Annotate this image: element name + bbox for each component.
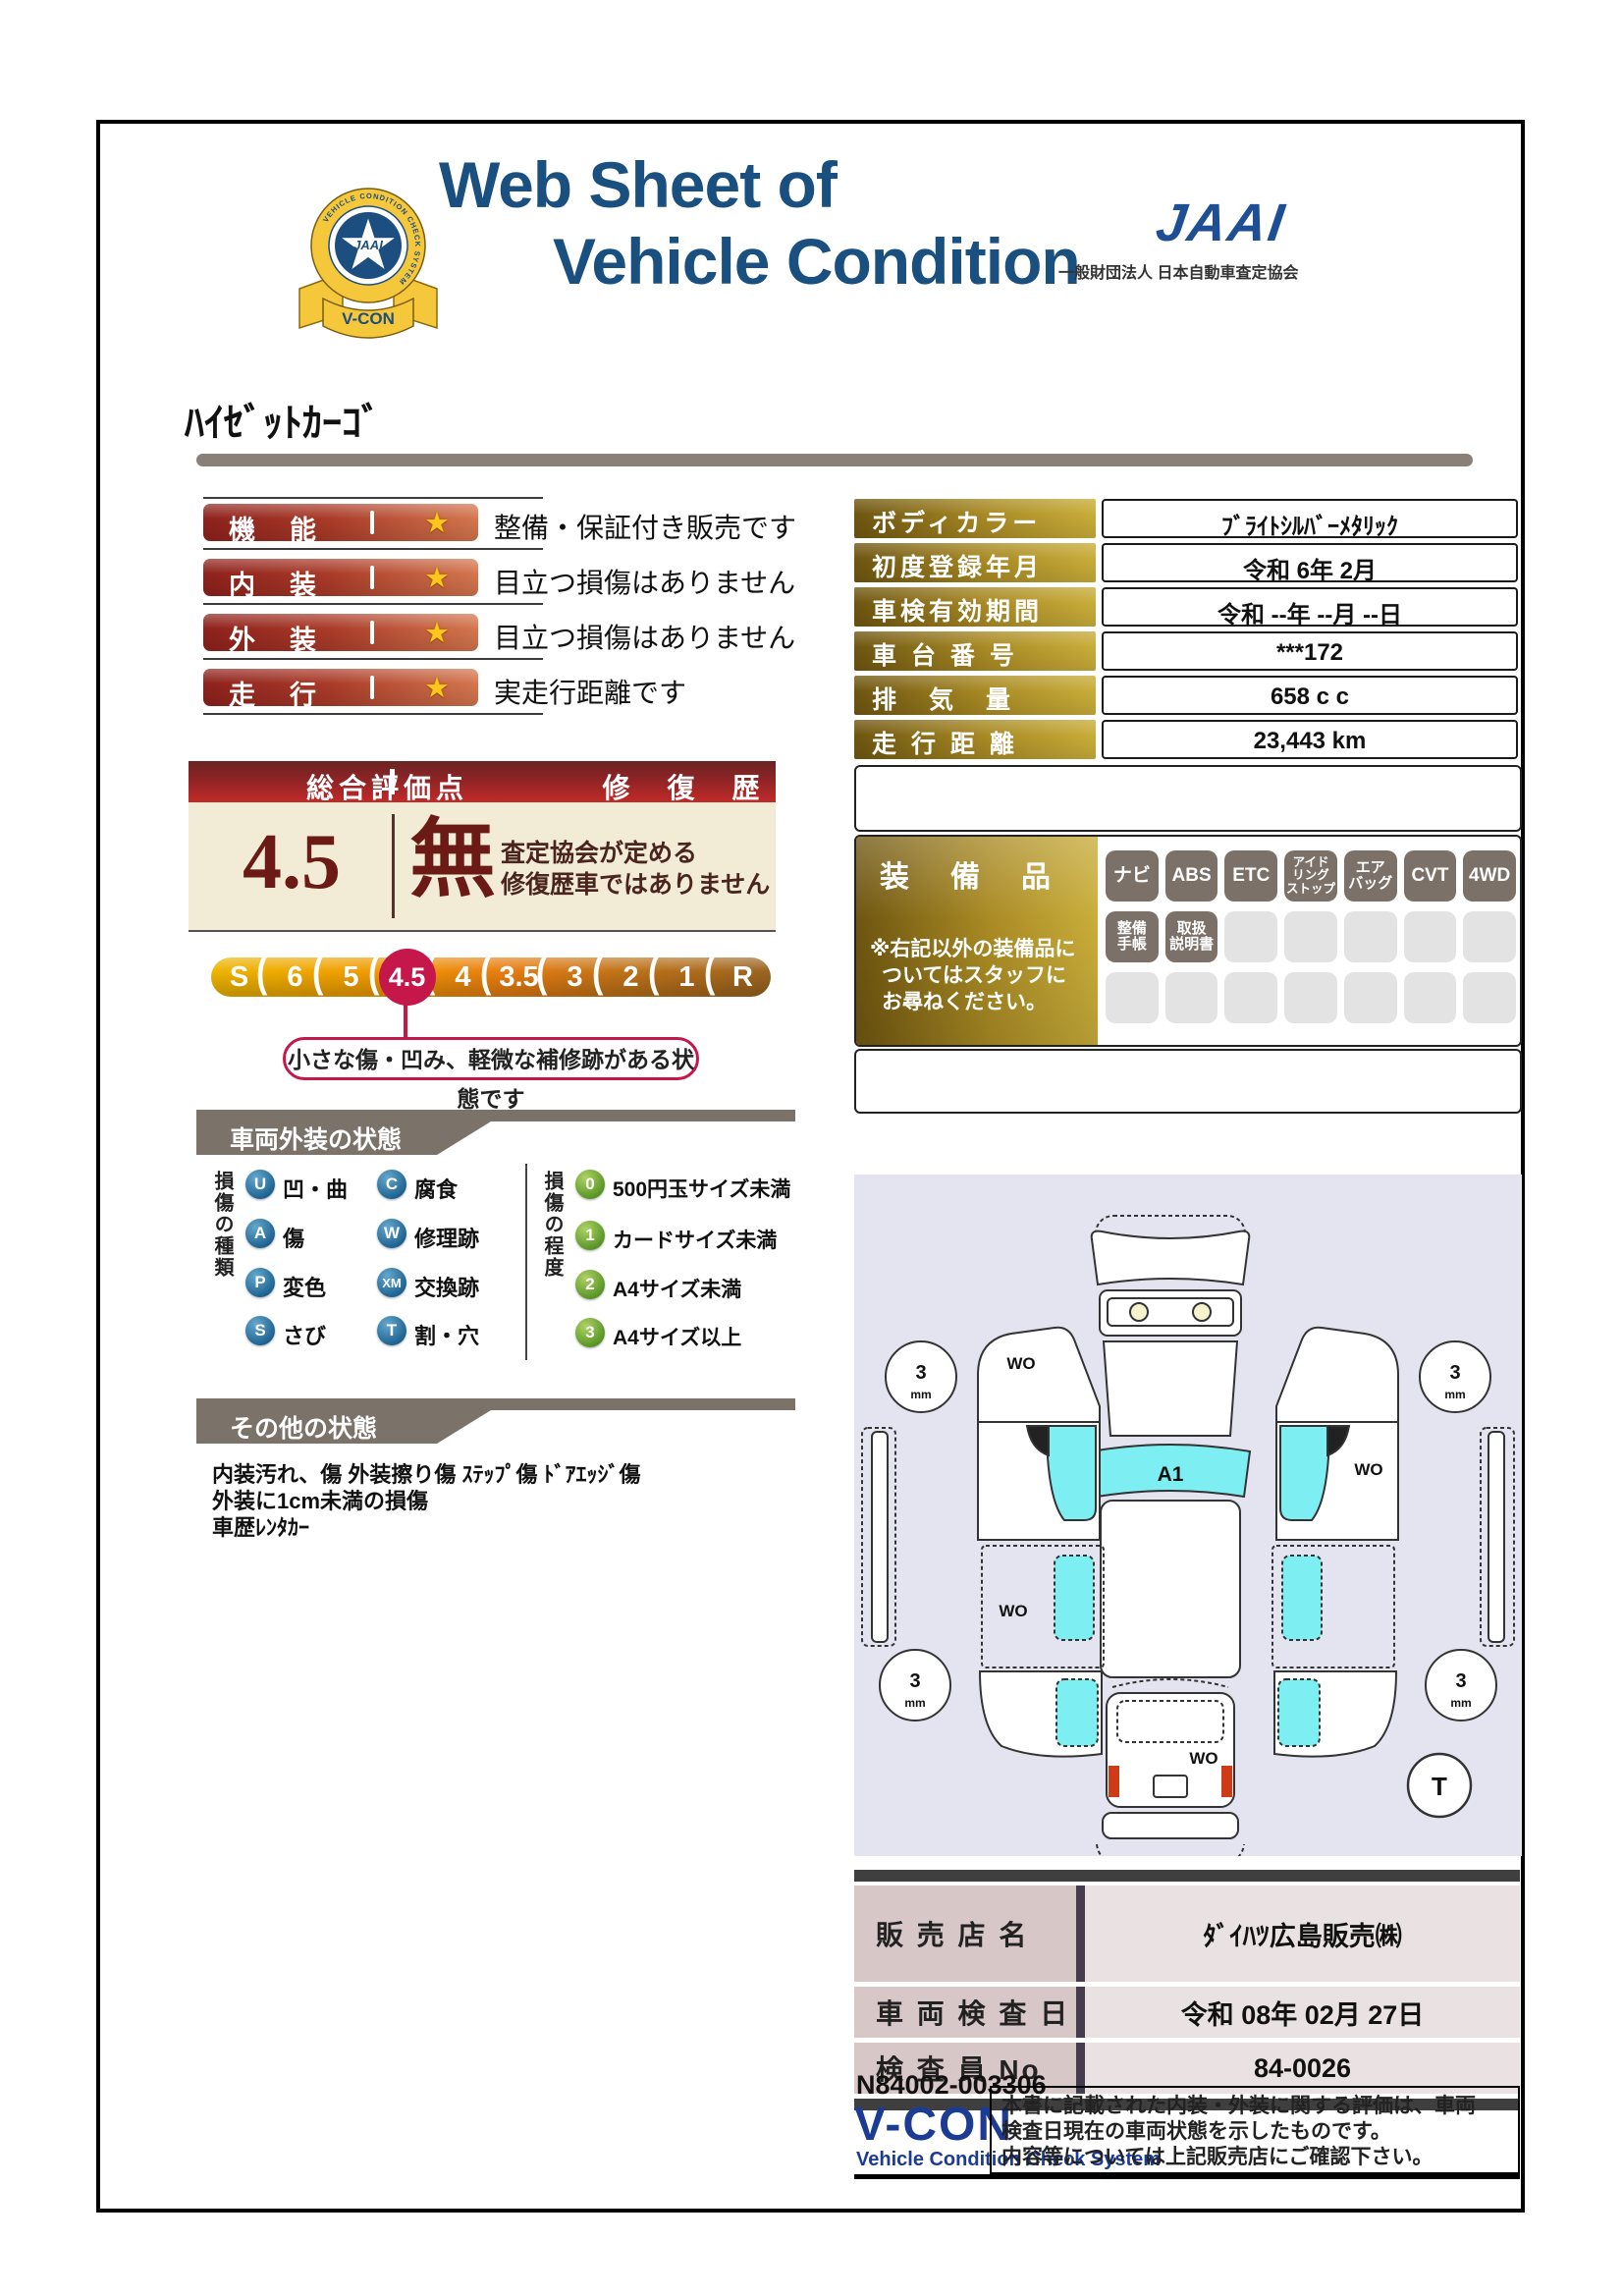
equipment-title: 装 備 品 <box>880 852 1056 896</box>
damage-type-icon: C <box>377 1170 406 1199</box>
damage-type-icon: W <box>377 1219 406 1248</box>
windshield <box>1104 1341 1237 1436</box>
emblem-ribbon-text: V-CON <box>342 309 395 328</box>
scale-grade: (R <box>715 957 771 997</box>
damage-grade-icon: 2 <box>575 1270 605 1299</box>
equipment-badge-empty <box>1224 911 1277 962</box>
equipment-badge-empty <box>1284 972 1337 1023</box>
rating-note: 目立つ損傷はありません <box>494 562 795 601</box>
rating-divider <box>203 658 543 660</box>
dealer-value: 令和 08年 02月 27日 <box>1085 1987 1520 2038</box>
info-value: ***172 <box>1102 631 1518 671</box>
right-rocker <box>1488 1432 1504 1642</box>
damage-type-label: 腐食 <box>414 1173 458 1204</box>
memo-box <box>854 765 1522 832</box>
repair-note-line2: 修復歴車ではありません <box>501 865 770 901</box>
damage-type-label: 修理跡 <box>414 1222 479 1253</box>
repair-history-flag: 無 <box>409 818 496 904</box>
damage-type-icon: P <box>245 1268 275 1297</box>
body-separator <box>392 814 395 918</box>
other-state-line: 内装汚れ、傷 外装擦り傷 ｽﾃｯﾌﾟ傷 ﾄﾞｱｴｯｼﾞ傷 <box>212 1461 641 1488</box>
damage-grade-icon: 0 <box>575 1170 605 1199</box>
star-icon: ★ <box>396 616 478 650</box>
damage-type-label: 傷 <box>283 1222 304 1253</box>
damage-type-label: 割・穴 <box>414 1319 479 1350</box>
rating-divider <box>203 497 543 499</box>
headlight-icon <box>1193 1303 1211 1321</box>
jaai-logo: JAAI <box>1153 192 1290 253</box>
dealer-separator <box>1076 1987 1085 2038</box>
rear-roofline <box>1112 1679 1228 1687</box>
rating-bar-exterior: 外 装 ★ <box>203 614 478 651</box>
info-label: 走 行 距 離 <box>854 720 1096 759</box>
damage-grade-icon: 3 <box>575 1318 605 1347</box>
equipment-note-line2: ついてはスタッフに <box>882 959 1066 989</box>
right-rear-window <box>1278 1679 1320 1746</box>
equipment-badge-empty <box>1344 972 1397 1023</box>
front-bumper <box>1092 1231 1250 1285</box>
rating-label: 外 装 <box>229 619 320 657</box>
selected-grade-marker: 4.5 <box>379 949 436 1006</box>
damage-grade-vertical-label: 損傷の程度 <box>538 1171 567 1328</box>
equipment-badge: エア バッグ <box>1344 850 1397 902</box>
rating-separator <box>370 621 374 644</box>
damage-type-label: 凹・曲 <box>283 1173 348 1204</box>
rating-bar-function: 機 能 ★ <box>203 504 478 541</box>
damage-grade-label: A4サイズ以上 <box>613 1322 741 1351</box>
damage-mark-wo: WO <box>1354 1460 1382 1479</box>
equipment-badge-grid: ナビ ABS ETC アイド リング ストップ エア バッグ CVT 4WD 整… <box>1106 850 1516 1023</box>
equipment-badge-empty <box>1106 972 1159 1023</box>
equipment-note-line1: ※右記以外の装備品に <box>870 933 1075 962</box>
equipment-note-line3: お尋ねください。 <box>882 986 1047 1015</box>
rating-bar-mileage: 走 行 ★ <box>203 669 478 706</box>
headlight-icon <box>1130 1303 1148 1321</box>
info-label: ボディカラー <box>854 499 1096 538</box>
rating-divider <box>203 713 543 715</box>
scale-grade-selected: ( 4.5 <box>379 957 435 997</box>
evaluation-scale: S (6 (5 ( 4.5 (4 (3.5 (3 (2 (1 (R <box>211 957 771 997</box>
damage-grade-label: カードサイズ未満 <box>613 1225 777 1254</box>
damage-type-label: さび <box>283 1319 326 1350</box>
vehicle-condition-sheet: VEHICLE CONDITION CHECK SYSTEM JAAI V-CO… <box>0 0 1623 2296</box>
vcon-emblem-logo: VEHICLE CONDITION CHECK SYSTEM JAAI V-CO… <box>290 185 447 347</box>
equipment-badge: ナビ <box>1106 850 1159 902</box>
callout-stem <box>404 1004 407 1039</box>
damage-mark-wo: WO <box>999 1602 1027 1620</box>
tread-depth-unit: mm <box>904 1696 925 1710</box>
left-rocker <box>872 1432 888 1642</box>
left-front-fender <box>978 1328 1100 1422</box>
equipment-badge: 整備 手帳 <box>1106 911 1159 962</box>
equipment-badge: CVT <box>1404 850 1457 902</box>
repair-note-line1: 査定協会が定める <box>501 834 697 869</box>
vehicle-name: ﾊｲｾﾞｯﾄｶｰｺﾞ <box>185 391 381 448</box>
equipment-badge-empty <box>1344 911 1397 962</box>
rating-note: 整備・保証付き販売です <box>494 507 796 546</box>
info-label: 車検有効期間 <box>854 587 1096 627</box>
tread-depth-value: 3 <box>909 1670 920 1692</box>
equipment-badge: 4WD <box>1463 850 1516 902</box>
damage-grade-label: 500円玉サイズ未満 <box>613 1174 790 1203</box>
damage-mark-a1: A1 <box>1158 1463 1184 1486</box>
dealer-value: ﾀﾞｲﾊﾂ広島販売㈱ <box>1085 1886 1520 1982</box>
damage-type-label: 交換跡 <box>414 1271 479 1302</box>
equipment-badge-empty <box>1404 972 1457 1023</box>
left-rear-window <box>1056 1679 1098 1746</box>
tread-depth-unit: mm <box>910 1388 931 1401</box>
other-state-line: 車歴ﾚﾝﾀｶｰ <box>212 1514 309 1541</box>
overall-bottom-rule <box>189 930 776 932</box>
front-grille <box>1108 1298 1233 1326</box>
info-value: 令和 --年 --月 --日 <box>1102 587 1518 627</box>
rating-divider <box>203 548 543 550</box>
sheet-title-line2: Vehicle Condition <box>553 224 1080 299</box>
damage-type-icon: T <box>377 1316 406 1345</box>
dealer-label: 車 両 検 査 日 <box>854 1987 1076 2038</box>
footer-note-line: 検査日現在の車両状態を示したものです。 <box>1001 2119 1508 2145</box>
footer-note-box: 本書に記載された内装・外装に関する評価は、車両 検査日現在の車両状態を示したもの… <box>990 2086 1520 2174</box>
overall-score-title: 総合評価点 <box>189 767 586 806</box>
rating-separator <box>370 511 374 534</box>
damage-grade-label: A4サイズ未満 <box>613 1274 741 1303</box>
rating-divider <box>203 603 543 605</box>
right-front-fender <box>1276 1328 1398 1422</box>
equipment-badge: ETC <box>1224 850 1277 902</box>
t-marker-label: T <box>1432 1772 1447 1801</box>
tread-depth-unit: mm <box>1450 1696 1471 1710</box>
info-value: 23,443 km <box>1102 720 1518 759</box>
damage-mark-wo: WO <box>1189 1749 1217 1768</box>
equipment-badge: 取扱 説明書 <box>1165 911 1218 962</box>
emblem-jaai-text: JAAI <box>353 238 383 252</box>
damage-grade-icon: 1 <box>575 1221 605 1250</box>
equipment-box: 装 備 品 ※右記以外の装備品に ついてはスタッフに お尋ねください。 ナビ A… <box>854 835 1522 1047</box>
legend-divider <box>525 1164 527 1360</box>
tread-depth-value: 3 <box>1449 1362 1460 1384</box>
rating-note: 目立つ損傷はありません <box>494 617 795 656</box>
equipment-badge: ABS <box>1165 850 1218 902</box>
car-damage-diagram: A1 WO WO WO 3 mm <box>854 1175 1522 1856</box>
jaai-organization-name: 一般財団法人 日本自動車査定協会 <box>1058 259 1298 283</box>
star-icon: ★ <box>396 561 478 595</box>
info-label: 初度登録年月 <box>854 543 1096 582</box>
equipment-badge-empty <box>1224 972 1277 1023</box>
overall-score-body: 4.5 無 査定協会が定める 修復歴車ではありません <box>189 802 776 930</box>
dealer-separator <box>1076 1886 1085 1982</box>
info-value: 令和 6年 2月 <box>1102 543 1518 582</box>
info-value: ﾌﾞﾗｲﾄｼﾙﾊﾞｰﾒﾀﾘｯｸ <box>1102 499 1518 538</box>
right-slide-window <box>1282 1556 1322 1640</box>
grade-description-callout: 小さな傷・凹み、軽微な補修跡がある状態です <box>283 1037 699 1080</box>
repair-history-title: 修 復 歴 <box>591 767 776 806</box>
footer-bottom-rule <box>854 2174 1520 2179</box>
damage-type-icon: XM <box>377 1268 406 1297</box>
rear-bumper <box>1103 1813 1238 1838</box>
tread-depth-unit: mm <box>1444 1388 1465 1401</box>
equipment-title-cell: 装 備 品 ※右記以外の装備品に ついてはスタッフに お尋ねください。 <box>856 837 1098 1045</box>
taillight-icon <box>1221 1766 1232 1797</box>
header-divider <box>196 454 1473 466</box>
damage-type-icon: S <box>245 1316 275 1345</box>
damage-type-label: 変色 <box>283 1271 326 1302</box>
overall-score-header: 総合評価点 修 復 歴 <box>189 761 776 802</box>
rating-label: 内 装 <box>229 564 320 602</box>
memo-box <box>854 1049 1522 1114</box>
sheet-title-line1: Web Sheet of <box>439 147 837 222</box>
rating-note: 実走行距離です <box>494 672 686 711</box>
rating-bar-interior: 内 装 ★ <box>203 559 478 596</box>
equipment-badge-empty <box>1284 911 1337 962</box>
dealer-table-top-bar <box>854 1870 1520 1882</box>
damage-mark-wo: WO <box>1006 1354 1035 1373</box>
tread-depth-value: 3 <box>1455 1670 1466 1692</box>
damage-type-icon: A <box>245 1219 275 1248</box>
footer-note-line: 本書に記載された内装・外装に関する評価は、車両 <box>1001 2094 1508 2119</box>
dealer-label: 販 売 店 名 <box>854 1886 1076 1982</box>
damage-type-vertical-label: 損傷の種類 <box>208 1171 237 1328</box>
rating-label: 走 行 <box>229 674 320 712</box>
rear-bumper-outline <box>1097 1844 1244 1856</box>
info-label: 車 台 番 号 <box>854 631 1096 671</box>
info-label: 排 気 量 <box>854 676 1096 715</box>
roof-panel <box>1101 1501 1240 1677</box>
rating-separator <box>370 676 374 699</box>
footer-note-line: 内容等については上記販売店にご確認下さい。 <box>1001 2145 1508 2170</box>
equipment-badge-empty <box>1165 972 1218 1023</box>
star-icon: ★ <box>396 506 478 540</box>
damage-type-icon: U <box>245 1170 275 1199</box>
star-icon: ★ <box>396 671 478 705</box>
left-slide-window <box>1055 1556 1094 1640</box>
equipment-badge-empty <box>1404 911 1457 962</box>
equipment-badge-empty <box>1463 972 1516 1023</box>
rating-separator <box>370 566 374 589</box>
taillight-icon <box>1109 1766 1119 1797</box>
tread-depth-value: 3 <box>915 1362 926 1384</box>
equipment-badge-empty <box>1463 911 1516 962</box>
other-state-line: 外装に1cm未満の損傷 <box>212 1488 428 1514</box>
header-separator <box>390 769 395 794</box>
rating-label: 機 能 <box>229 509 320 547</box>
license-plate <box>1154 1776 1187 1797</box>
info-value: 658 c c <box>1102 676 1518 715</box>
equipment-badge: アイド リング ストップ <box>1284 850 1337 902</box>
overall-score-value: 4.5 <box>218 818 365 907</box>
